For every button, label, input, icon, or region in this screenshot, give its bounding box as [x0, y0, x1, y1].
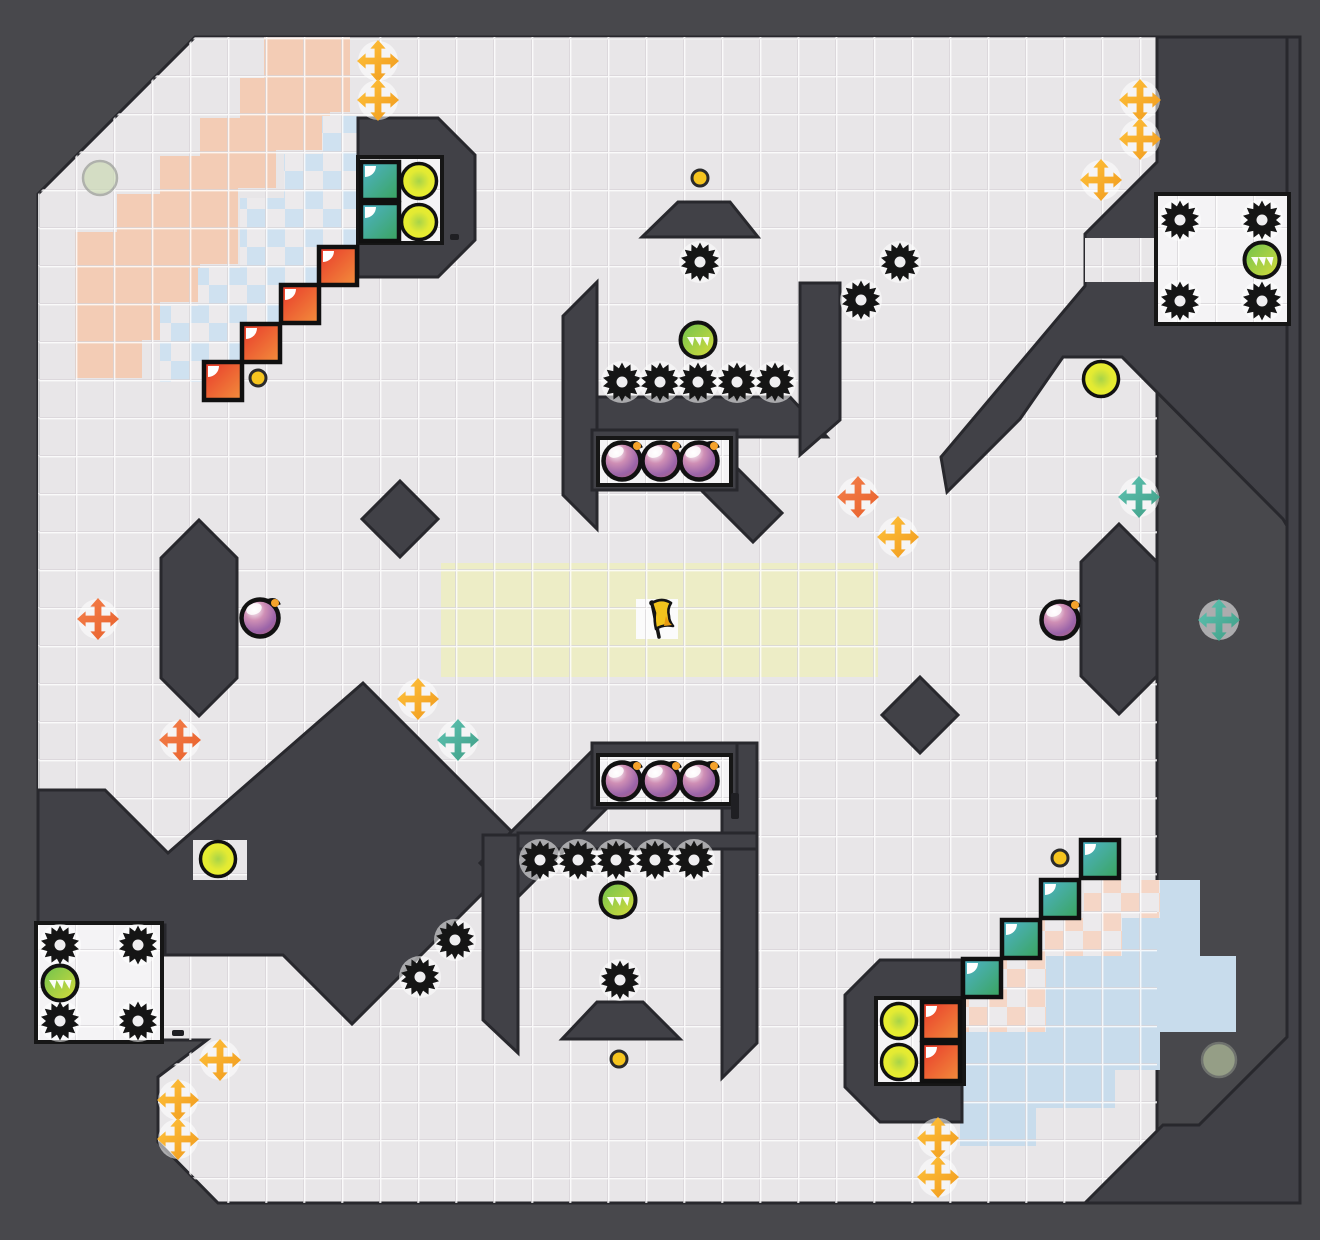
saw-gear-icon [399, 956, 441, 998]
wall-s-left-wall [483, 835, 518, 1053]
yellow-orb [882, 1004, 917, 1039]
saw-gear-icon [434, 919, 476, 961]
bomb-icon [242, 599, 280, 637]
yellow-orb [882, 1045, 917, 1080]
small-coin-dot [611, 1051, 627, 1067]
pale-ghost-orb [83, 161, 117, 195]
saw-gear-icon [673, 839, 715, 881]
saw-gear-icon [677, 361, 719, 403]
bomb-icon [604, 442, 642, 480]
switch-tile-teal [1081, 840, 1119, 878]
gearbox-mouth [1085, 238, 1158, 282]
slit-marker [172, 1030, 184, 1036]
game-map-canvas[interactable] [0, 0, 1320, 1240]
wall-t-left-slab [563, 282, 597, 529]
yellow-orb [402, 164, 437, 199]
bomb-icon [643, 442, 681, 480]
yellow-orb [201, 842, 236, 877]
saw-gear-icon [557, 839, 599, 881]
switch-tile-teal [963, 959, 1001, 997]
saw-gear-icon [879, 241, 921, 283]
switch-tile-red [242, 324, 280, 362]
saw-gear-icon [754, 361, 796, 403]
switch-tile-red [922, 1002, 960, 1040]
green-chomper-orb [1245, 243, 1280, 278]
saw-gear-icon [117, 924, 159, 966]
yellow-orb [1084, 362, 1119, 397]
saw-gear-icon [39, 924, 81, 966]
saw-gear-icon [39, 1000, 81, 1042]
switch-tile-teal [1041, 880, 1079, 918]
game-level-map[interactable] [0, 0, 1320, 1240]
saw-gear-icon [117, 1000, 159, 1042]
saw-gear-icon [1241, 280, 1283, 322]
saw-gear-icon [1241, 199, 1283, 241]
saw-gear-icon [639, 361, 681, 403]
yellow-orb [402, 205, 437, 240]
saw-gear-icon [1159, 280, 1201, 322]
green-chomper-orb [43, 966, 78, 1001]
slit-marker [450, 234, 459, 240]
small-coin-dot [692, 170, 708, 186]
saw-gear-icon [679, 241, 721, 283]
saw-gear-icon [1159, 199, 1201, 241]
zone-solid-blue [1160, 880, 1200, 918]
slit-marker [731, 793, 739, 819]
saw-gear-icon [634, 839, 676, 881]
saw-gear-icon [840, 279, 882, 321]
switch-tile-red [922, 1043, 960, 1081]
bomb-icon [681, 442, 719, 480]
green-chomper-orb [681, 323, 716, 358]
saw-gear-icon [601, 361, 643, 403]
switch-tile-red [204, 362, 242, 400]
switch-tile-teal [361, 203, 399, 241]
switch-tile-red [319, 247, 357, 285]
saw-gear-icon [519, 839, 561, 881]
pale-ghost-orb [1202, 1043, 1236, 1077]
green-chomper-orb [601, 883, 636, 918]
bomb-icon [1042, 601, 1080, 639]
small-coin-dot [250, 370, 266, 386]
wall-right-pillar [1081, 524, 1157, 714]
saw-gear-icon [595, 839, 637, 881]
bomb-icon [604, 762, 642, 800]
bomb-icon [643, 762, 681, 800]
switch-tile-teal [1002, 920, 1040, 958]
switch-tile-teal [361, 162, 399, 200]
saw-gear-icon [599, 959, 641, 1001]
saw-gear-icon [716, 361, 758, 403]
switch-tile-red [281, 285, 319, 323]
small-coin-dot [1052, 850, 1068, 866]
wall-left-pillar [161, 520, 237, 716]
bomb-icon [681, 762, 719, 800]
